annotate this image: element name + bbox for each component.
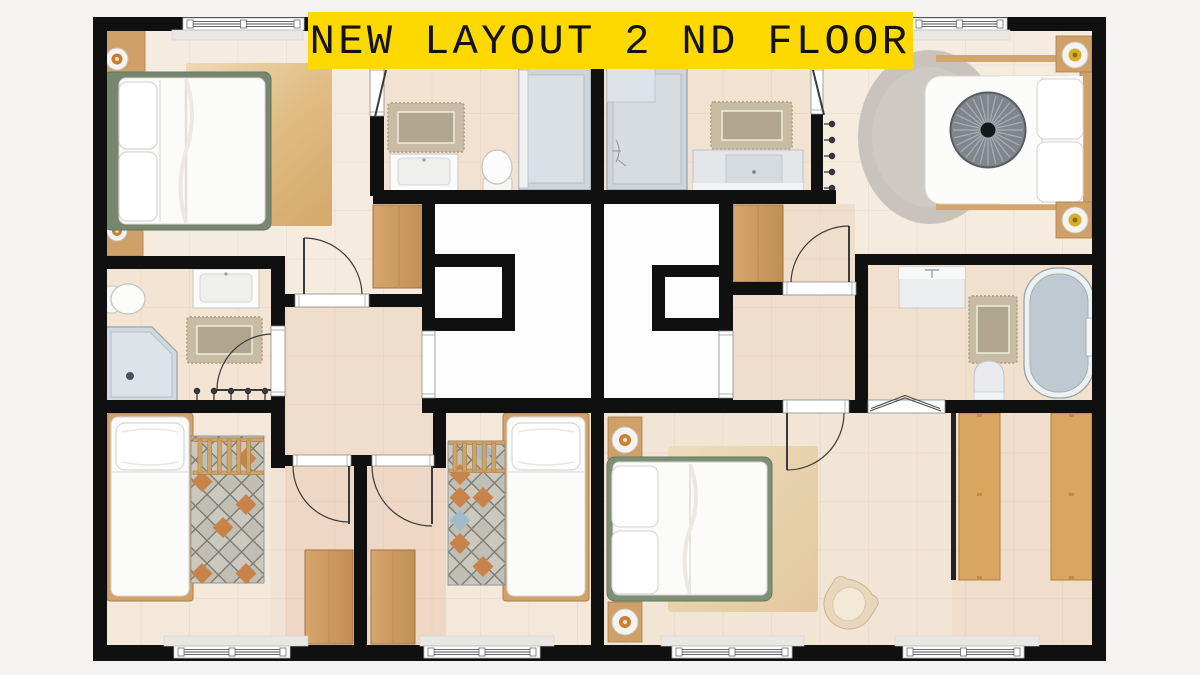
svg-text:NEW LAYOUT 2 ND FLOOR: NEW LAYOUT 2 ND FLOOR bbox=[310, 18, 911, 66]
